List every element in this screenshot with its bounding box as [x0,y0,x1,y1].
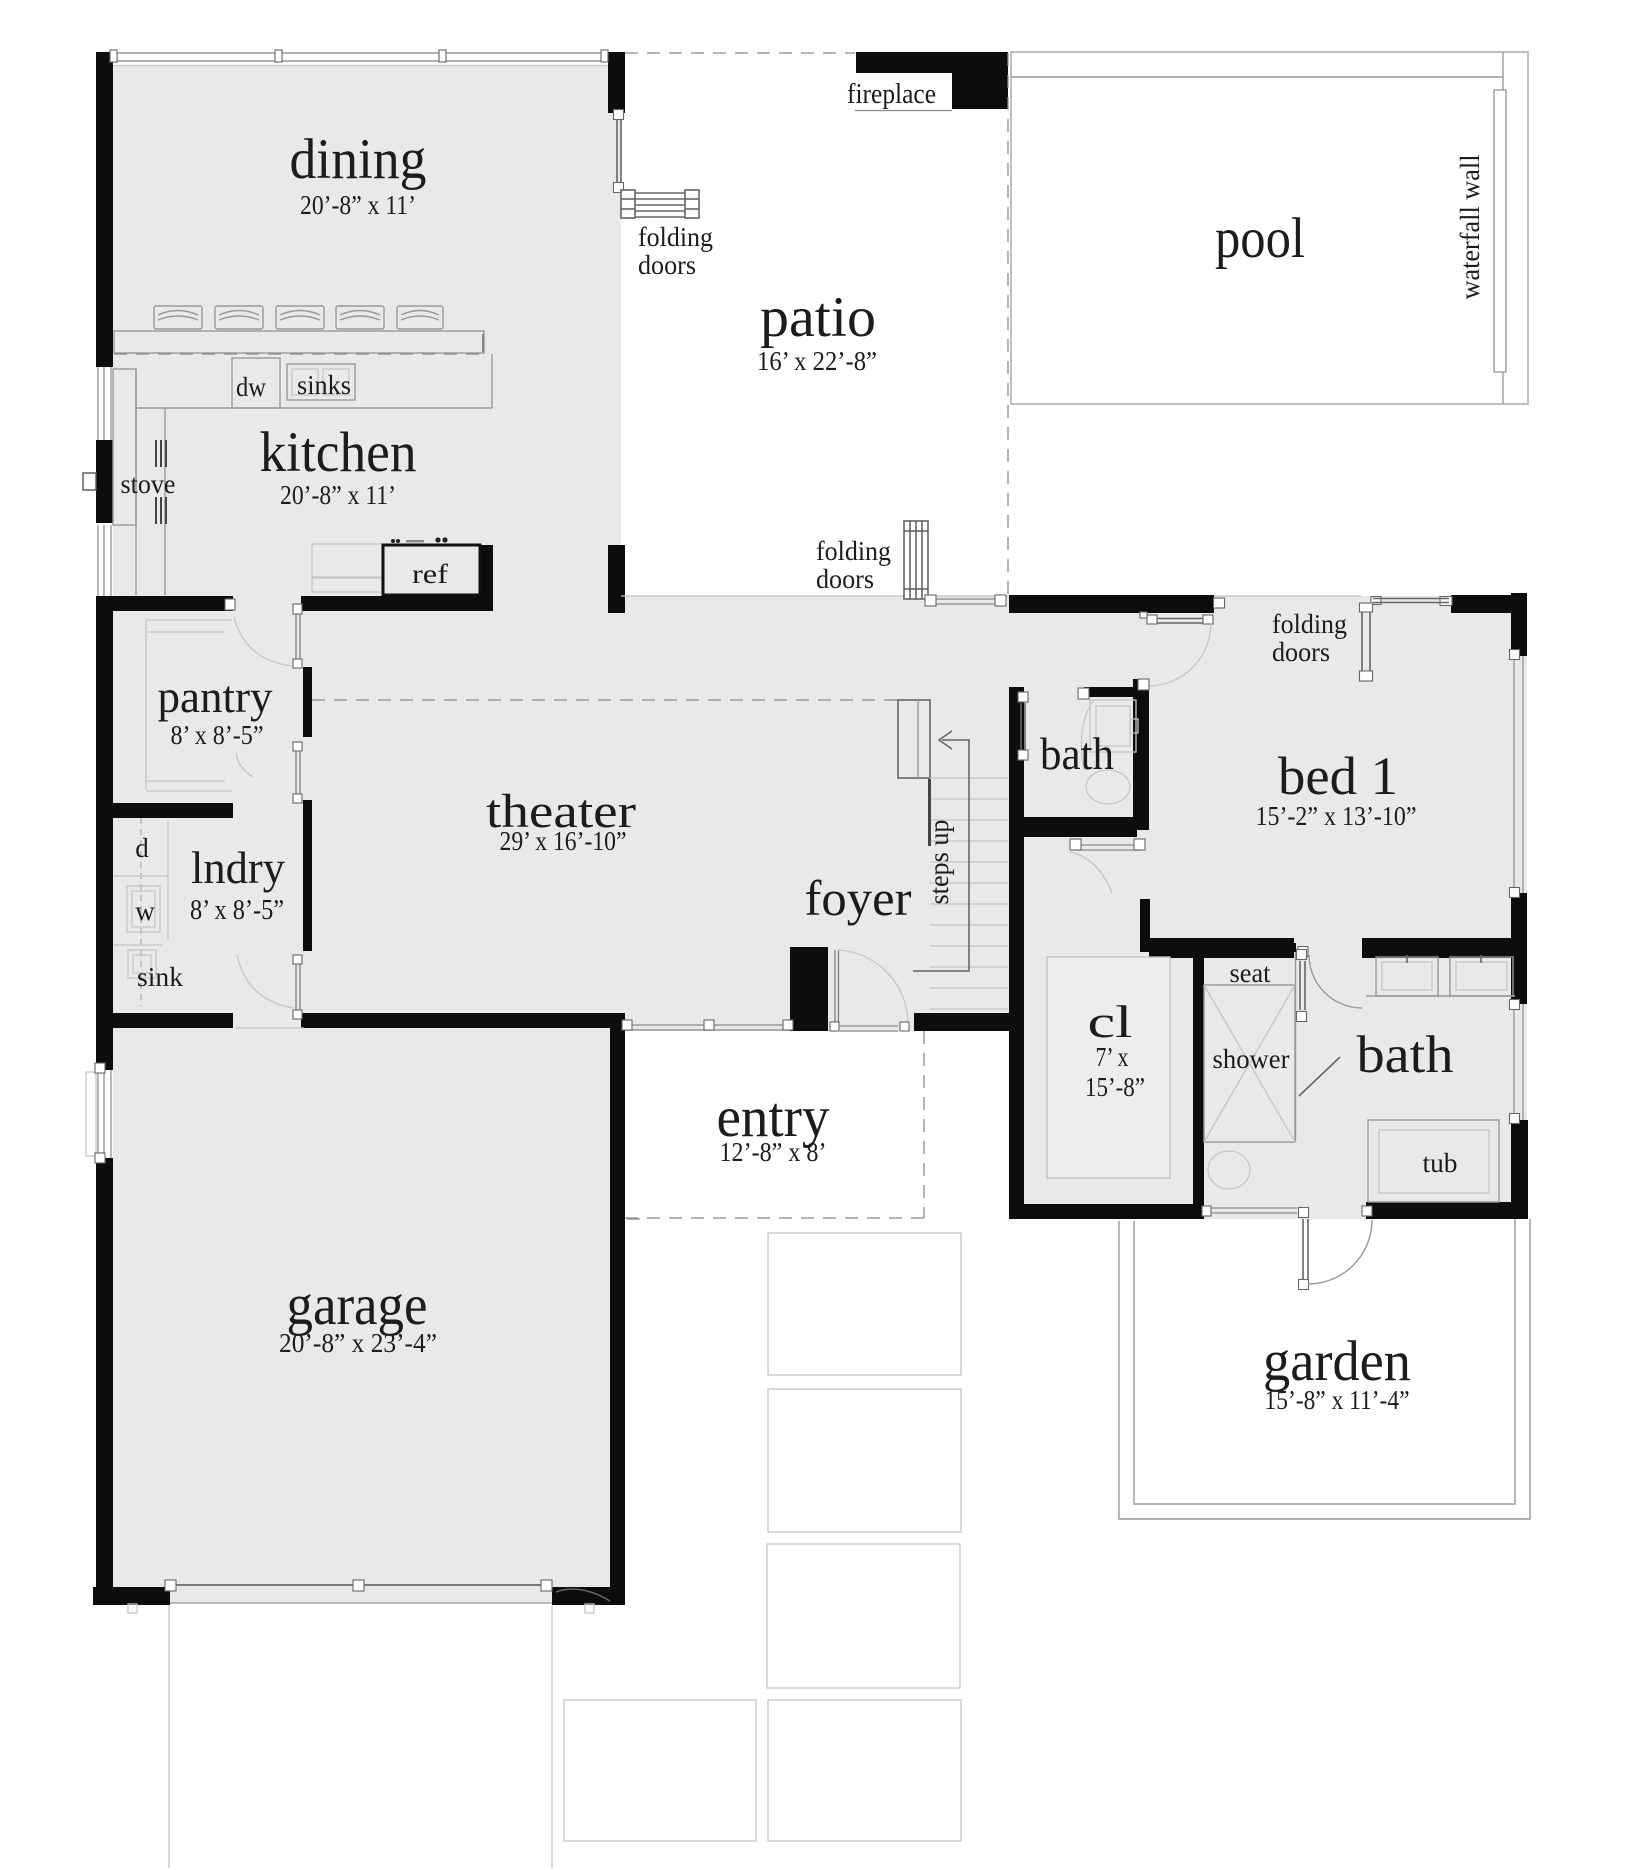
svg-text:seat: seat [1230,958,1271,988]
svg-text:lndry: lndry [191,843,285,893]
svg-text:steps up: steps up [924,820,954,905]
svg-text:kitchen: kitchen [260,421,417,484]
svg-text:d: d [135,833,149,863]
svg-text:doors: doors [1272,637,1330,667]
svg-text:20’-8” x 23’-4”: 20’-8” x 23’-4” [279,1328,437,1358]
svg-text:garden: garden [1263,1330,1411,1393]
svg-text:20’-8” x 11’: 20’-8” x 11’ [280,480,396,510]
svg-text:bath: bath [1357,1026,1454,1084]
svg-text:patio: patio [760,286,876,349]
svg-text:pantry: pantry [158,672,273,722]
svg-text:pool: pool [1215,207,1305,270]
svg-text:12’-8” x 8’: 12’-8” x 8’ [720,1137,827,1167]
svg-text:waterfall wall: waterfall wall [1455,155,1485,300]
svg-text:15’-2” x 13’-10”: 15’-2” x 13’-10” [1256,801,1417,831]
svg-text:sink: sink [137,962,184,992]
svg-text:8’ x 8’-5”: 8’ x 8’-5” [190,895,284,926]
svg-text:cl: cl [1088,996,1133,1047]
svg-text:folding: folding [816,536,891,566]
svg-text:15’-8”: 15’-8” [1085,1072,1145,1102]
svg-text:20’-8” x 11’: 20’-8” x 11’ [300,190,416,220]
svg-text:foyer: foyer [805,870,912,926]
svg-text:bath: bath [1040,728,1114,779]
svg-text:tub: tub [1423,1148,1458,1178]
svg-text:doors: doors [816,564,874,594]
svg-text:8’ x 8’-5”: 8’ x 8’-5” [171,720,264,750]
svg-text:fireplace: fireplace [847,79,936,110]
svg-text:ref: ref [412,559,448,589]
svg-text:stove: stove [121,469,176,499]
svg-text:29’ x 16’-10”: 29’ x 16’-10” [500,826,627,856]
svg-text:folding: folding [638,222,713,252]
svg-text:shower: shower [1213,1044,1290,1074]
svg-text:dw: dw [236,372,266,402]
svg-text:folding: folding [1272,609,1347,639]
svg-text:sinks: sinks [297,370,351,400]
svg-text:7’ x: 7’ x [1096,1042,1129,1072]
svg-text:16’ x 22’-8”: 16’ x 22’-8” [757,346,877,376]
svg-text:bed 1: bed 1 [1278,746,1398,806]
svg-text:w: w [135,896,155,926]
svg-text:doors: doors [638,250,696,280]
svg-text:15’-8” x 11’-4”: 15’-8” x 11’-4” [1265,1385,1410,1415]
svg-text:dining: dining [290,128,427,191]
